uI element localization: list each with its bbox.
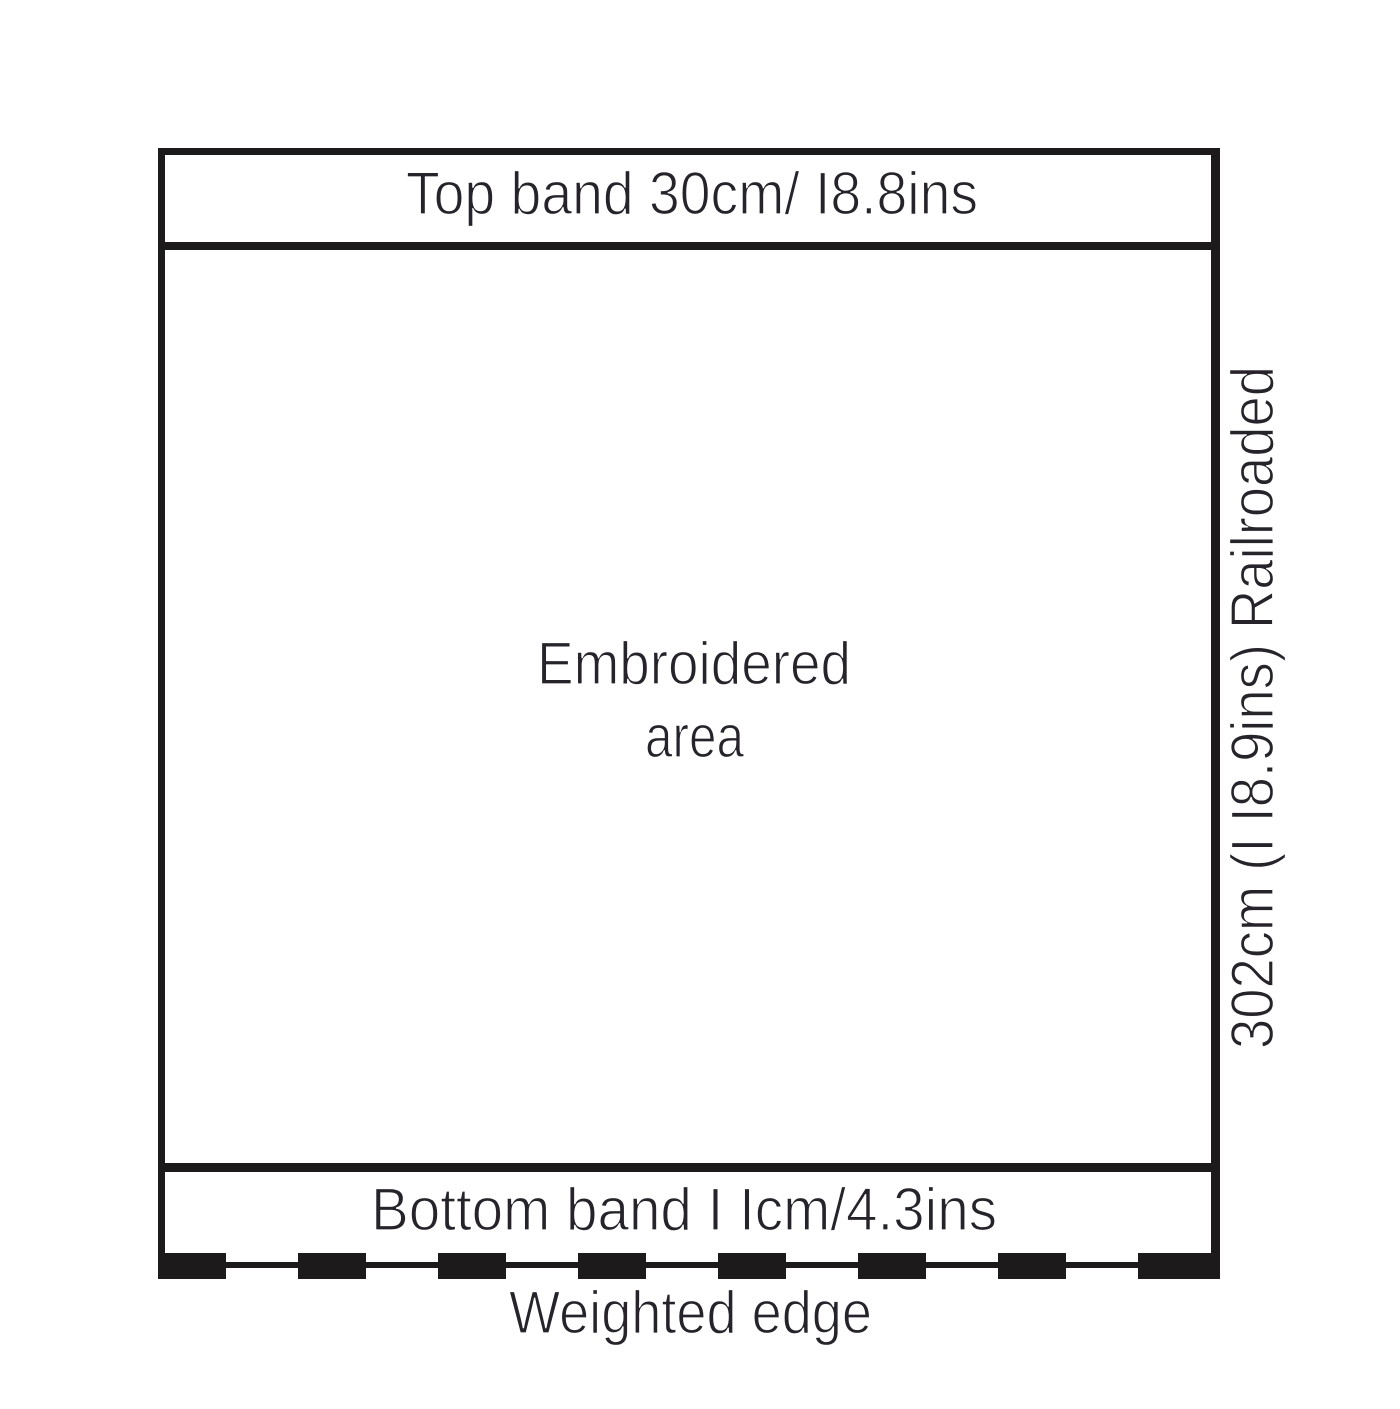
svg-text:Top band 30cm/ I8.8ins: Top band 30cm/ I8.8ins [406,160,978,227]
svg-text:area: area [645,703,745,770]
svg-text:Bottom band I Icm/4.3ins: Bottom band I Icm/4.3ins [371,1176,997,1243]
svg-text:302cm (I I8.9ins) Railroaded: 302cm (I I8.9ins) Railroaded [1219,366,1286,1049]
svg-text:Weighted edge: Weighted edge [509,1279,872,1346]
svg-text:Embroidered: Embroidered [537,630,851,697]
